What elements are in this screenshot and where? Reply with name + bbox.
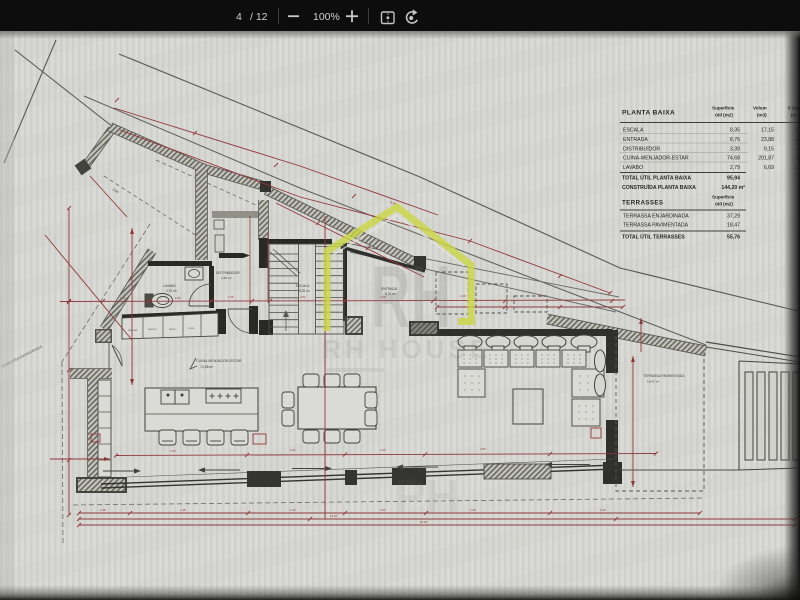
svg-text:/ 12: / 12 [250,11,268,23]
svg-text:4: 4 [236,11,242,23]
svg-text:100%: 100% [313,11,340,23]
